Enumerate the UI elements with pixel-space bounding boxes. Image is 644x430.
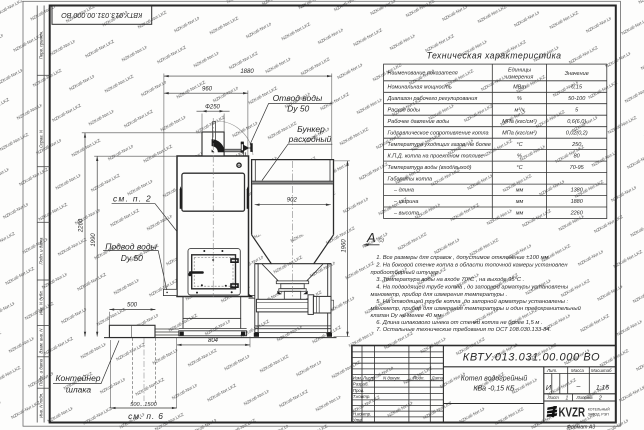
svg-text:50-100: 50-100 — [568, 96, 586, 102]
svg-text:Бункер: Бункер — [297, 124, 325, 134]
svg-text:Разраб.: Разраб. — [353, 381, 369, 386]
svg-text:Наименование показателя: Наименование показателя — [388, 71, 458, 77]
svg-text:Листов: Листов — [576, 395, 594, 400]
svg-text:1990: 1990 — [91, 233, 97, 247]
svg-text:–: – — [577, 384, 581, 391]
svg-text:Масштаб: Масштаб — [591, 368, 612, 373]
svg-text:Dy 50: Dy 50 — [121, 253, 143, 263]
svg-text:Лист: Лист — [362, 375, 375, 380]
svg-text:804: 804 — [208, 338, 219, 344]
svg-text:м³/ч: м³/ч — [515, 107, 525, 113]
svg-text:Лист: Лист — [547, 395, 560, 400]
svg-text:Пров.: Пров. — [353, 388, 365, 393]
svg-text:мм: мм — [516, 211, 524, 217]
svg-text:Ф250: Ф250 — [205, 104, 220, 110]
svg-text:Температура уходящих газов, не: Температура уходящих газов, не более — [388, 142, 491, 148]
svg-text:Диапазон рабочего регулировани: Диапазон рабочего регулирования — [387, 96, 478, 102]
svg-text:80: 80 — [574, 153, 581, 159]
svg-text:2260: 2260 — [570, 211, 584, 217]
svg-text:Изм.: Изм. — [353, 375, 362, 380]
svg-text:Перв. примен.: Перв. примен. — [39, 31, 44, 60]
svg-text:мм: мм — [516, 188, 524, 194]
svg-text:Гидравлическое сопротивление к: Гидравлическое сопротивление котла — [388, 130, 489, 136]
svg-text:1:15: 1:15 — [596, 385, 609, 392]
svg-text:МПа (кгс/см²): МПа (кгс/см²) — [502, 130, 537, 136]
svg-text:1. Все размеры для справок ,: 1. Все размеры для справок , допустимое … — [376, 255, 550, 261]
svg-text:3. Температура воды на входе: 3. Температура воды на входе 70°С , на в… — [376, 277, 524, 283]
svg-text:Т.контр.: Т.контр. — [353, 394, 371, 399]
svg-text:4. На подводящей трубе котла: 4. На подводящей трубе котла , до запорн… — [376, 284, 569, 291]
svg-text:Температура воды (вход/выход): Температура воды (вход/выход) — [388, 165, 472, 171]
svg-text:%: % — [517, 96, 522, 102]
svg-text:Лит.: Лит. — [546, 368, 557, 373]
svg-text:И: И — [546, 383, 552, 392]
svg-text:МПа (кгс/см²): МПа (кгс/см²) — [502, 119, 537, 125]
svg-text:70-95: 70-95 — [570, 165, 585, 171]
svg-text:1880: 1880 — [571, 199, 584, 205]
svg-text:Масса: Масса — [571, 368, 585, 373]
svg-text:0,15: 0,15 — [571, 85, 583, 91]
svg-text:°С: °С — [516, 165, 522, 171]
svg-text:0,02(0,2): 0,02(0,2) — [566, 130, 588, 136]
svg-text:Dy 50: Dy 50 — [287, 104, 309, 114]
svg-text:Отвод воды: Отвод воды — [273, 93, 323, 103]
svg-text:Инв. N дубл.: Инв. N дубл. — [39, 290, 44, 315]
svg-text:Расход воды: Расход воды — [388, 107, 421, 113]
svg-text:(2): (2) — [379, 238, 385, 243]
svg-text:Подп.: Подп. — [413, 375, 425, 380]
svg-text:– высота: – высота — [393, 211, 419, 217]
svg-text:КВТУ.013.031.00.000 ВО: КВТУ.013.031.00.000 ВО — [463, 351, 600, 363]
svg-text:пробоотборный штуцер .: пробоотборный штуцер . — [371, 269, 442, 276]
svg-text:7. Остальные технические треб: 7. Остальные технические требования по О… — [376, 327, 551, 333]
svg-text:Взам. инв. N: Взам. инв. N — [39, 328, 44, 354]
svg-text:А: А — [366, 230, 376, 245]
svg-text:KVZR: KVZR — [559, 406, 586, 420]
svg-text:манометр, прибор для измерения: манометр, прибор для измерения температу… — [371, 305, 582, 312]
svg-text:К.П.Д. котла на проектном топл: К.П.Д. котла на проектном топливе — [388, 153, 484, 159]
svg-text:Подп. и дата: Подп. и дата — [39, 358, 44, 386]
svg-text:Единицы: Единицы — [508, 68, 531, 74]
svg-text:Справ. N: Справ. N — [39, 129, 44, 148]
svg-text:Контейнер: Контейнер — [55, 373, 100, 383]
svg-text:2: 2 — [598, 395, 602, 401]
svg-text:шлака: шлака — [66, 385, 92, 395]
svg-text:1: 1 — [566, 395, 569, 401]
svg-text:клапан Dу не менее 40 мм.: клапан Dу не менее 40 мм. — [371, 313, 444, 319]
svg-text:6. Длина шлакового шнека от с: 6. Длина шлакового шнека от стенки котла… — [376, 320, 542, 326]
svg-text:960: 960 — [202, 86, 213, 92]
svg-text:Дата: Дата — [431, 375, 444, 380]
svg-text:Номинальная мощность: Номинальная мощность — [388, 85, 452, 91]
svg-text:500: 500 — [127, 302, 138, 308]
svg-text:Утв.: Утв. — [353, 417, 363, 422]
svg-text:N докум.: N докум. — [383, 375, 401, 380]
svg-text:ЗАВОД. РЭП: ЗАВОД. РЭП — [588, 412, 609, 416]
svg-text:Значение: Значение — [565, 71, 589, 77]
svg-text:КОТЕЛЬНЫЙ: КОТЕЛЬНЫЙ — [588, 407, 610, 411]
svg-text:902: 902 — [287, 198, 298, 204]
svg-text:2260: 2260 — [79, 218, 85, 233]
svg-text:1380: 1380 — [571, 188, 584, 194]
svg-text:см. п. 6: см. п. 6 — [128, 411, 164, 421]
svg-text:расходный: расходный — [288, 134, 332, 144]
svg-text:500...1500: 500...1500 — [130, 402, 157, 408]
svg-text:МВт: МВт — [513, 85, 526, 91]
svg-text:Рабочее давление воды: Рабочее давление воды — [388, 119, 450, 125]
svg-text:Н.контр.: Н.контр. — [353, 412, 372, 417]
svg-text:измерения: измерения — [506, 75, 534, 81]
svg-text:Габариты котла: Габариты котла — [388, 176, 433, 182]
svg-text:Техническая характеристика: Техническая характеристика — [427, 51, 562, 61]
svg-text:– длина: – длина — [393, 188, 414, 194]
svg-text:мм: мм — [516, 199, 524, 205]
svg-text:°С: °С — [516, 142, 522, 148]
svg-text:КВа -0,15 КБ: КВа -0,15 КБ — [473, 386, 515, 393]
svg-text:2. На боковой стенке котла в: 2. На боковой стенке котла в области топ… — [375, 262, 568, 269]
svg-text:0,6(6,0): 0,6(6,0) — [567, 119, 586, 125]
svg-text:1960: 1960 — [341, 239, 347, 253]
svg-text:Формат А3: Формат А3 — [567, 424, 595, 430]
svg-text:Инв. N подл.: Инв. N подл. — [39, 393, 44, 418]
svg-text:250: 250 — [571, 142, 582, 148]
svg-text:5. На отводящей трубе котла ,: 5. На отводящей трубе котла ,до запорной… — [376, 298, 568, 305]
svg-text:Подп. и дата: Подп. и дата — [39, 237, 44, 265]
svg-text:1880: 1880 — [240, 69, 254, 75]
svg-text:Котел водогрейный: Котел водогрейный — [461, 375, 528, 383]
svg-text:– ширина: – ширина — [393, 199, 418, 205]
svg-text:КВТУ.013.031.00.000 ВО: КВТУ.013.031.00.000 ВО — [61, 11, 143, 20]
svg-text:Подвод воды: Подвод воды — [105, 241, 157, 251]
svg-text:см. п. 2: см. п. 2 — [113, 193, 152, 203]
svg-text:манометр, прибор для измерения: манометр, прибор для измерения температу… — [371, 292, 508, 298]
svg-text:%: % — [517, 153, 522, 159]
